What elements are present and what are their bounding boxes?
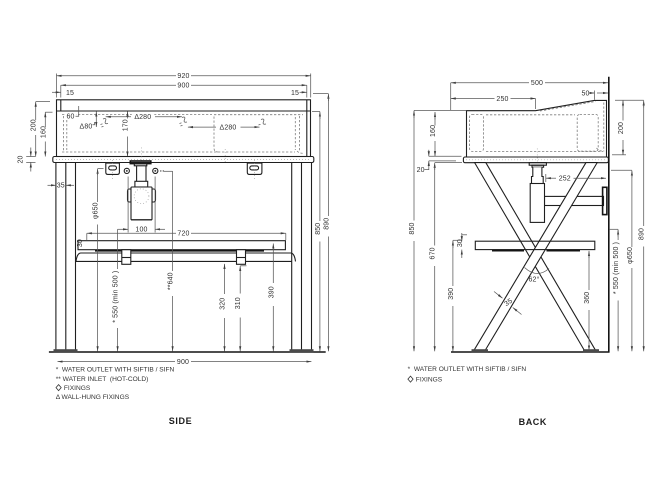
svg-text:310: 310 [235,297,242,309]
svg-text:200: 200 [618,122,625,134]
svg-text:* 550 (min 500 ): * 550 (min 500 ) [613,242,620,294]
svg-text:890: 890 [639,228,646,240]
svg-text:160: 160 [430,125,437,137]
svg-text:890: 890 [323,218,330,230]
svg-text:* WATER OUTLET WITH SIFTIB /: * WATER OUTLET WITH SIFTIB / SIFN [408,366,527,373]
svg-text:900: 900 [177,359,189,366]
svg-text:FIXINGS: FIXINGS [416,376,443,383]
svg-text:FIXINGS: FIXINGS [64,385,91,392]
svg-text:250: 250 [496,96,508,103]
svg-text:160: 160 [40,126,47,138]
svg-text:**640: **640 [168,272,175,290]
svg-text:62°: 62° [529,276,540,284]
svg-text:15: 15 [66,90,74,97]
svg-text:50: 50 [582,90,590,97]
svg-text:Δ WALL-HUNG FIXINGS: Δ WALL-HUNG FIXINGS [56,394,130,401]
svg-text:* 550 (min 500 ): * 550 (min 500 ) [113,271,120,323]
svg-text:Δ80: Δ80 [80,123,93,130]
svg-text:100: 100 [135,227,147,234]
svg-text:850: 850 [409,222,416,234]
svg-text:252: 252 [559,176,571,183]
svg-text:φ650: φ650 [93,202,100,219]
svg-text:20: 20 [18,155,25,163]
svg-text:500: 500 [531,80,543,87]
svg-text:320: 320 [220,298,227,310]
svg-text:60: 60 [67,113,75,120]
svg-text:BACK: BACK [519,417,547,427]
svg-text:20: 20 [417,167,425,174]
svg-text:390: 390 [268,286,275,298]
svg-text:35: 35 [57,183,65,190]
svg-text:360: 360 [584,292,591,304]
svg-text:170: 170 [123,119,130,131]
svg-text:Δ280: Δ280 [220,125,237,132]
svg-text:SIDE: SIDE [169,416,192,426]
svg-text:670: 670 [430,247,437,259]
svg-text:15: 15 [291,90,299,97]
svg-text:850: 850 [315,223,322,235]
svg-text:390: 390 [448,288,455,300]
svg-text:720: 720 [177,231,189,238]
svg-text:900: 900 [177,83,189,90]
svg-text:200: 200 [31,119,38,131]
svg-text:φ650: φ650 [627,247,634,264]
svg-text:* WATER OUTLET WITH SIFTIB /: * WATER OUTLET WITH SIFTIB / SIFN [56,367,175,374]
svg-text:30: 30 [77,239,84,247]
svg-text:** WATER INLET (HOT-COLD): ** WATER INLET (HOT-COLD) [56,376,149,383]
svg-text:920: 920 [177,73,189,80]
svg-text:Δ280: Δ280 [134,114,151,121]
